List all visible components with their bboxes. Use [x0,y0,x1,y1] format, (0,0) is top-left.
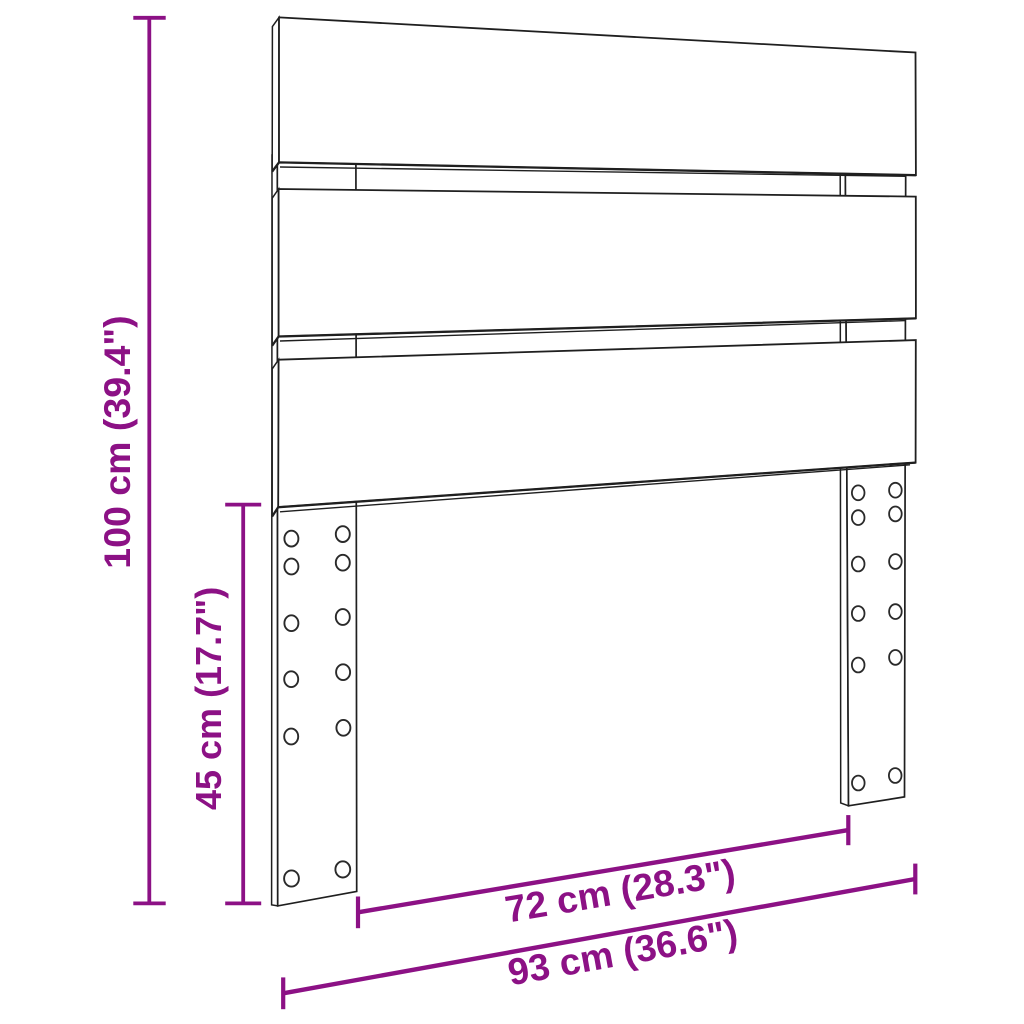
svg-text:100 cm (39.4"): 100 cm (39.4") [96,315,138,568]
svg-text:45 cm (17.7"): 45 cm (17.7") [188,587,229,810]
